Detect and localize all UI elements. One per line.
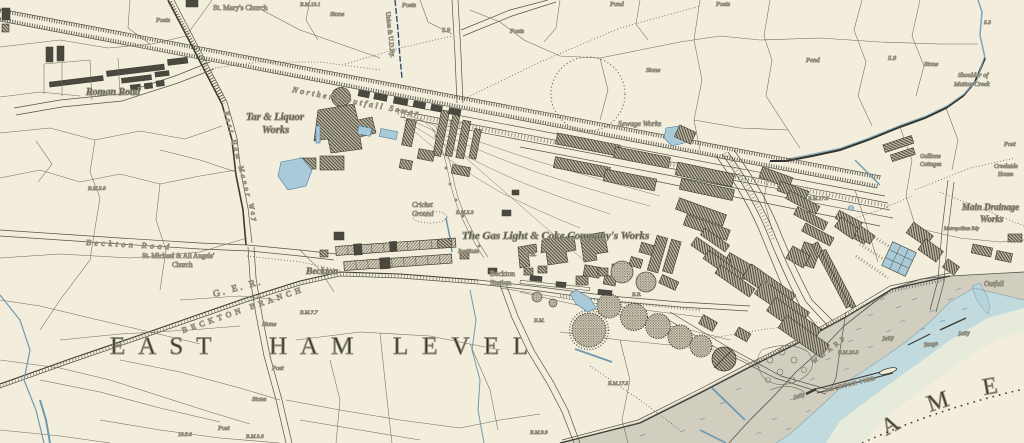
svg-text:Posts: Posts — [509, 28, 525, 35]
svg-text:Pond: Pond — [609, 1, 624, 8]
svg-text:Tar & Liquor: Tar & Liquor — [246, 112, 305, 123]
svg-text:HAM: HAM — [269, 333, 366, 360]
svg-text:5.9: 5.9 — [442, 27, 451, 34]
svg-text:B.M.20.5: B.M.20.5 — [838, 350, 859, 356]
svg-text:Stone: Stone — [924, 61, 939, 68]
svg-text:Post: Post — [217, 425, 230, 432]
svg-text:Cricket: Cricket — [412, 201, 434, 209]
svg-text:B.M.: B.M. — [526, 252, 537, 258]
svg-text:House: House — [997, 172, 1014, 178]
svg-text:Station: Station — [490, 278, 512, 287]
svg-text:5.9: 5.9 — [888, 55, 897, 62]
svg-text:St. Michael & All Angels': St. Michael & All Angels' — [142, 252, 214, 260]
svg-text:Works: Works — [262, 125, 289, 136]
svg-text:The Gas Light & Coke Company's: The Gas Light & Coke Company's Works — [462, 230, 649, 242]
svg-text:Stone: Stone — [252, 396, 267, 403]
svg-text:Post: Post — [1003, 141, 1016, 148]
svg-text:Church: Church — [172, 261, 193, 269]
svg-text:Institute: Institute — [457, 248, 479, 255]
svg-text:Gallions: Gallions — [920, 154, 941, 160]
svg-text:Posts: Posts — [715, 1, 731, 8]
svg-text:Posts: Posts — [401, 2, 417, 9]
svg-text:Roman Road: Roman Road — [85, 87, 141, 98]
svg-text:EAST: EAST — [110, 333, 225, 360]
svg-text:Main Drainage: Main Drainage — [961, 202, 1019, 212]
svg-text:Sewage Works: Sewage Works — [618, 119, 661, 128]
svg-text:Pond: Pond — [805, 57, 820, 64]
svg-text:Shoulder of: Shoulder of — [958, 72, 989, 79]
svg-text:18.5.6: 18.5.6 — [178, 432, 192, 438]
svg-text:LEVEL: LEVEL — [393, 333, 542, 360]
svg-text:Cottages: Cottages — [920, 162, 942, 168]
svg-text:B.M.3.8: B.M.3.8 — [246, 434, 264, 440]
svg-text:Creekside: Creekside — [994, 164, 1018, 170]
svg-text:Stone: Stone — [262, 321, 277, 328]
svg-text:Stone: Stone — [330, 11, 345, 18]
svg-text:Post: Post — [271, 365, 284, 372]
svg-text:B.M.17.6: B.M.17.6 — [808, 196, 829, 202]
svg-text:B.M.17.5: B.M.17.5 — [608, 381, 629, 387]
svg-text:Works: Works — [980, 214, 1004, 224]
svg-text:5.3: 5.3 — [984, 20, 991, 26]
svg-text:B.M.9.9: B.M.9.9 — [530, 430, 548, 436]
svg-text:B.M.7.7: B.M.7.7 — [300, 310, 318, 316]
svg-text:Outfall: Outfall — [984, 280, 1004, 288]
svg-text:B.B.: B.B. — [762, 280, 771, 286]
svg-text:Mutton Creek: Mutton Creek — [953, 81, 990, 88]
svg-text:Metropolitan Bdy: Metropolitan Bdy — [943, 227, 980, 232]
svg-text:Beckton: Beckton — [305, 267, 338, 277]
svg-text:B.M.5.6: B.M.5.6 — [88, 186, 106, 192]
svg-text:Posts: Posts — [155, 17, 171, 24]
svg-text:Beckton: Beckton — [490, 269, 515, 278]
svg-text:B.B.: B.B. — [632, 292, 641, 298]
svg-text:Ground: Ground — [412, 210, 434, 218]
svg-text:B.M.5.3: B.M.5.3 — [456, 210, 474, 216]
svg-text:B.M.: B.M. — [534, 318, 545, 324]
svg-text:B.M.13.1: B.M.13.1 — [300, 2, 321, 8]
svg-text:Stone: Stone — [646, 67, 661, 74]
svg-text:St. Mary's Church: St. Mary's Church — [213, 3, 268, 12]
